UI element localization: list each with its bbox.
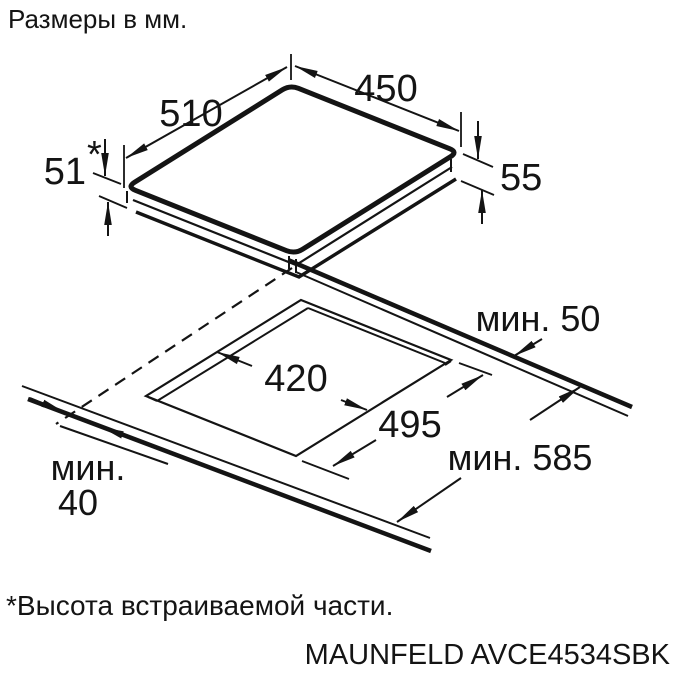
- dim-420-label: 420: [264, 358, 327, 400]
- dim-510-label: 510: [159, 93, 222, 135]
- installation-diagram-page: Размеры в мм. 510 450 51 * 5: [0, 0, 674, 674]
- dim-min40-label-line2: 40: [58, 482, 98, 523]
- dim-51-star: *: [87, 134, 102, 176]
- dim-min40: мин. 40: [30, 398, 142, 523]
- dim-min50-arrow: [514, 339, 542, 356]
- dim-min585-arrow-upper: [530, 387, 580, 420]
- dim-450-label: 450: [354, 68, 417, 110]
- dim-55-ext-lower: [461, 181, 494, 195]
- dim-55: 55: [461, 121, 542, 224]
- dim-495-ext-top: [459, 363, 492, 375]
- page-title: Размеры в мм.: [8, 4, 187, 34]
- dim-495-ext-bottom: [302, 461, 349, 479]
- dim-min585-label: мин. 585: [448, 437, 593, 478]
- dim-51-label: 51: [44, 151, 86, 193]
- dim-min585-arrow-lower: [397, 478, 461, 522]
- dimension-drawing: Размеры в мм. 510 450 51 * 5: [0, 0, 674, 674]
- dim-51: 51 *: [44, 134, 127, 236]
- dim-51-ext-lower: [99, 196, 127, 208]
- model-name: MAUNFELD AVCE4534SBK: [305, 639, 671, 671]
- dim-495-label: 495: [378, 404, 441, 446]
- dim-495-line-upper: [447, 375, 483, 397]
- dim-min50-label: мин. 50: [476, 298, 601, 339]
- dim-55-label: 55: [500, 157, 542, 199]
- footnote: *Высота встраиваемой части.: [6, 590, 393, 621]
- dim-495-line-lower: [333, 440, 376, 466]
